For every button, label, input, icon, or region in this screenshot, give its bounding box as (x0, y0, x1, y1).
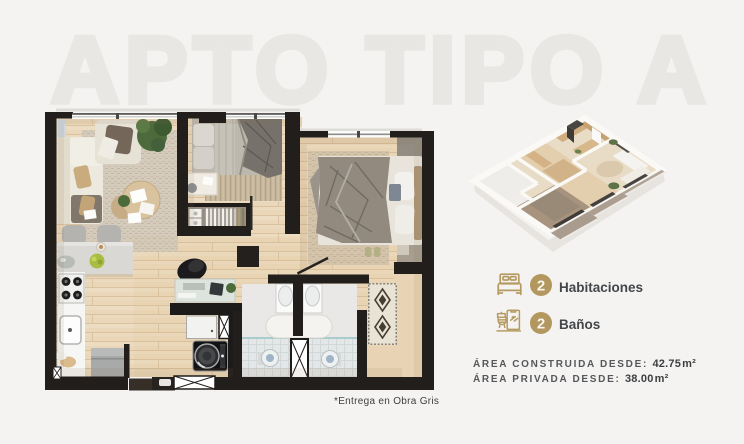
svg-text:2: 2 (537, 278, 545, 295)
svg-text:2: 2 (537, 316, 545, 333)
